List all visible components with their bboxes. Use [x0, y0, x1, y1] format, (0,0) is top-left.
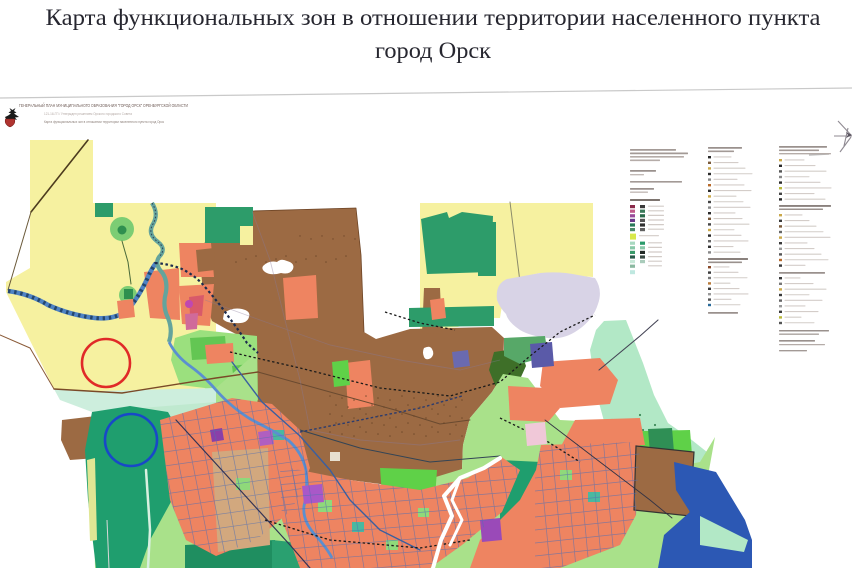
svg-text:город Орск: город Орск [375, 38, 492, 64]
svg-text:121-18-ГП / Утвержден решением: 121-18-ГП / Утвержден решением Орского г… [44, 111, 133, 116]
svg-text:Карта функциональных зон в отн: Карта функциональных зон в отношении тер… [44, 119, 164, 124]
svg-text:ГЕНЕРАЛЬНЫЙ ПЛАН МУНИЦИПАЛЬНОГ: ГЕНЕРАЛЬНЫЙ ПЛАН МУНИЦИПАЛЬНОГО ОБРАЗОВА… [19, 103, 188, 108]
svg-text:Карта функциональных зон в отн: Карта функциональных зон в отношении тер… [46, 5, 822, 31]
